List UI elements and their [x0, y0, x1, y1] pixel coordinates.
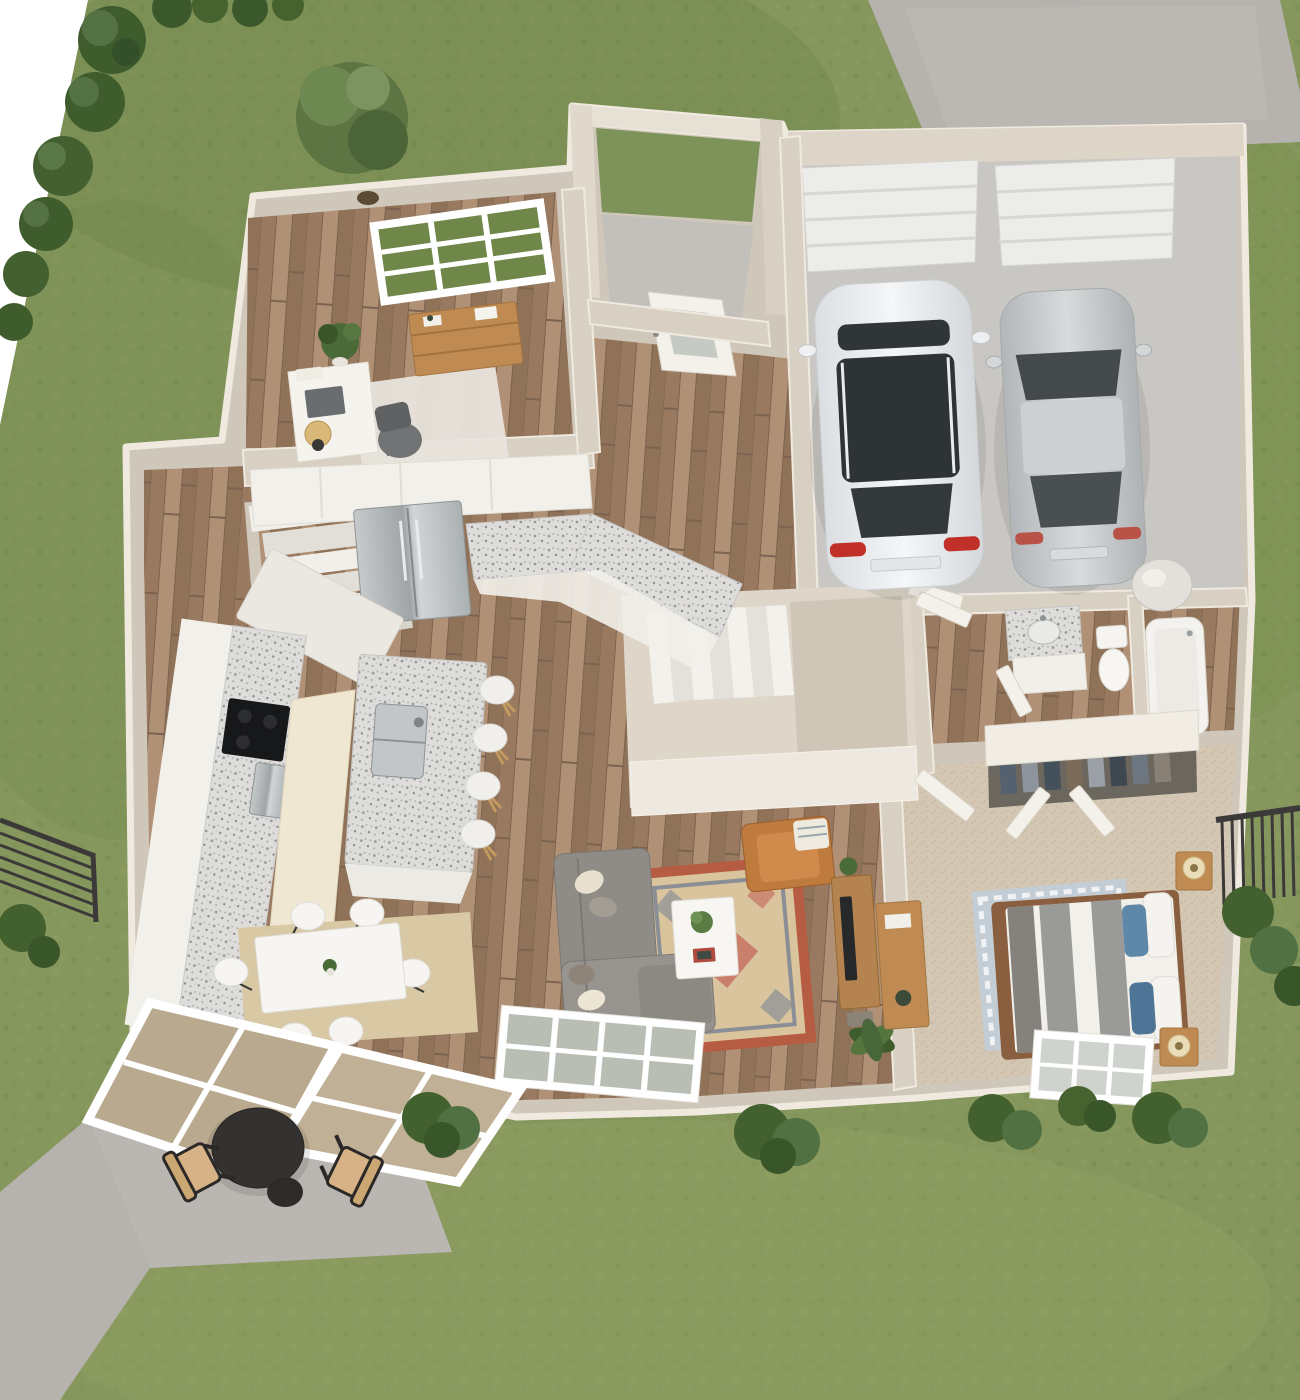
- windshield: [1016, 349, 1124, 400]
- driveway-highlight: [905, 6, 1268, 130]
- nightstand-north: [1176, 852, 1212, 890]
- cooktop: [221, 698, 290, 762]
- table-book: [697, 951, 712, 960]
- rear-window: [1030, 471, 1125, 528]
- conifer: [78, 6, 146, 74]
- coffee-table: [671, 897, 738, 979]
- fence-picket: [1222, 821, 1224, 905]
- patio-side-table: [267, 1177, 303, 1207]
- conifer: [33, 136, 93, 196]
- water-heater-highlight: [1142, 569, 1166, 587]
- stair-hall-shadow: [790, 596, 908, 762]
- conifer: [3, 251, 49, 297]
- white-suv: [795, 277, 1003, 593]
- side-mirror: [986, 356, 1003, 369]
- water-heater: [1132, 559, 1192, 611]
- side-mirror: [798, 344, 817, 357]
- coffee-table-top: [671, 897, 738, 979]
- tv-console: [831, 875, 880, 1009]
- taillight-left: [830, 542, 867, 558]
- side-mirror: [972, 331, 991, 344]
- car-roof: [1020, 397, 1126, 474]
- plant-pot: [332, 357, 348, 367]
- nightstand-south: [1160, 1028, 1198, 1066]
- office-dresser: [408, 302, 523, 377]
- vanity: [1005, 605, 1087, 694]
- plant-foliage: [343, 323, 361, 341]
- floor-plan-svg: [0, 0, 1300, 1400]
- tree-canopy: [348, 110, 408, 170]
- toilet-tank: [1096, 625, 1127, 649]
- roof-glass: [836, 353, 960, 483]
- taillight-right: [943, 536, 980, 552]
- fence-post: [93, 854, 96, 922]
- bedroom-desk: [876, 901, 930, 1030]
- lamp-center: [1175, 1042, 1183, 1050]
- fence-picket: [1282, 813, 1284, 897]
- pillow-blue: [1121, 904, 1149, 958]
- fence-picket: [1272, 814, 1274, 898]
- taillight-right: [1113, 527, 1142, 540]
- kitchen-island: [343, 654, 488, 904]
- dresser-body: [408, 302, 523, 377]
- taillight-left: [1015, 532, 1044, 545]
- fence-picket: [1262, 816, 1264, 900]
- vanity-cabinet: [1013, 653, 1087, 694]
- lamp-center: [1190, 864, 1198, 872]
- license-plate: [1050, 546, 1108, 560]
- pillow-blue-dark: [1129, 982, 1157, 1036]
- dining-table: [254, 923, 406, 1014]
- conifer: [65, 72, 125, 132]
- tree-canopy: [346, 66, 390, 110]
- fence-picket: [1292, 812, 1294, 896]
- lamp-base: [312, 439, 324, 451]
- conifer: [19, 197, 73, 251]
- tree-trunk: [357, 191, 379, 205]
- side-mirror: [1135, 344, 1152, 357]
- plant-foliage: [318, 324, 338, 344]
- floor-plan-render: [0, 0, 1300, 1400]
- leather-armchair: [741, 816, 836, 893]
- office-desk: [288, 362, 378, 462]
- porch-lawn-opening: [596, 128, 760, 222]
- laptop: [304, 386, 345, 418]
- desk-books: [884, 913, 911, 929]
- rear-window: [851, 483, 955, 538]
